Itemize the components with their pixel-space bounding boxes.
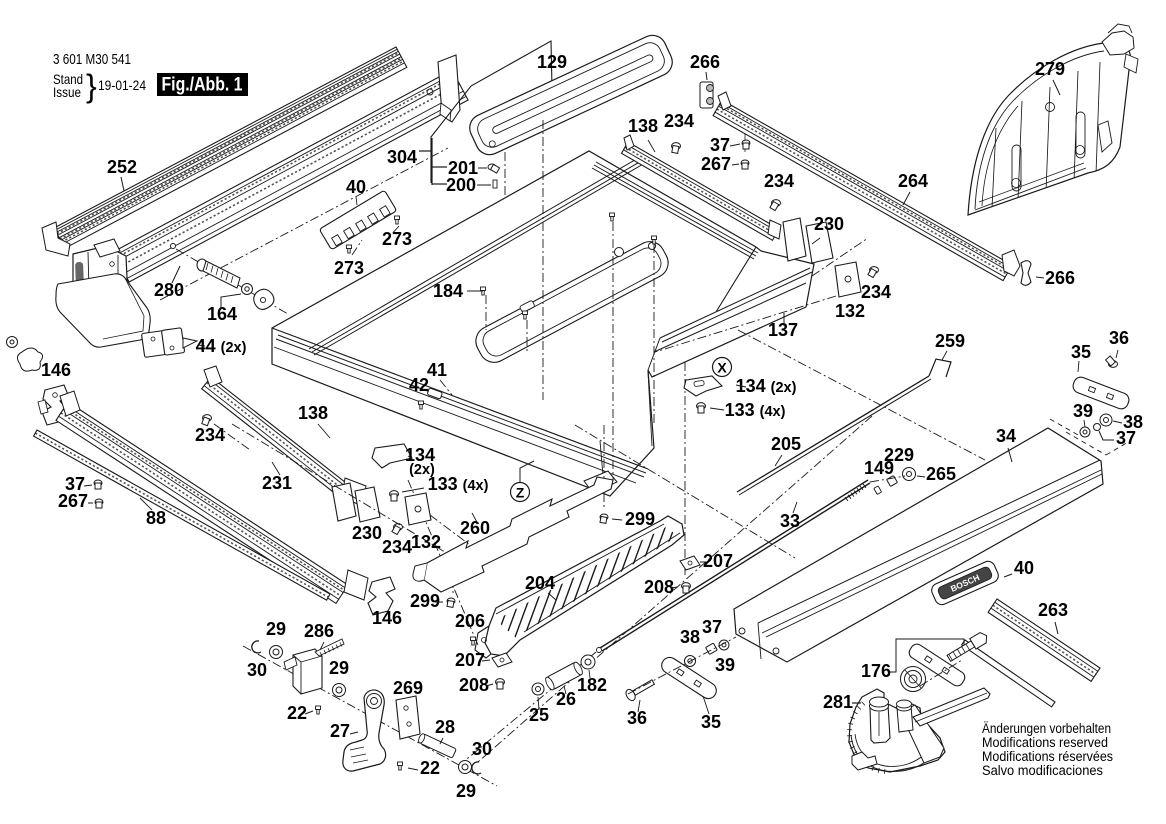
svg-text:286: 286: [304, 621, 334, 641]
svg-text:184: 184: [433, 281, 463, 301]
svg-text:132: 132: [411, 532, 441, 552]
svg-text:}: }: [86, 68, 97, 104]
svg-text:40: 40: [1014, 558, 1034, 578]
svg-text:299: 299: [410, 591, 440, 611]
svg-text:267: 267: [58, 491, 88, 511]
svg-text:28: 28: [435, 717, 455, 737]
svg-text:265: 265: [926, 464, 956, 484]
svg-text:132: 132: [835, 301, 865, 321]
svg-text:Modifications réservées: Modifications réservées: [982, 749, 1113, 764]
svg-text:273: 273: [334, 258, 364, 278]
svg-text:37: 37: [1116, 428, 1136, 448]
svg-text:234: 234: [195, 425, 225, 445]
svg-text:29: 29: [266, 619, 286, 639]
svg-text:40: 40: [346, 177, 366, 197]
svg-text:88: 88: [146, 508, 166, 528]
svg-text:29: 29: [456, 781, 476, 801]
svg-text:234: 234: [764, 171, 794, 191]
svg-text:22: 22: [287, 703, 307, 723]
svg-text:26: 26: [556, 689, 576, 709]
svg-text:234: 234: [382, 537, 412, 557]
svg-text:266: 266: [690, 52, 720, 72]
svg-text:260: 260: [460, 518, 490, 538]
svg-text:138: 138: [298, 403, 328, 423]
svg-text:39: 39: [715, 655, 735, 675]
svg-text:42: 42: [409, 375, 429, 395]
svg-text:38: 38: [680, 627, 700, 647]
svg-text:137: 137: [768, 320, 798, 340]
svg-text:X: X: [717, 360, 727, 376]
svg-text:259: 259: [935, 331, 965, 351]
svg-text:252: 252: [107, 157, 137, 177]
svg-text:164: 164: [207, 304, 237, 324]
svg-text:30: 30: [472, 739, 492, 759]
svg-text:27: 27: [330, 721, 350, 741]
svg-text:30: 30: [247, 660, 267, 680]
svg-text:231: 231: [262, 473, 292, 493]
svg-text:35: 35: [1071, 342, 1091, 362]
svg-text:234: 234: [861, 282, 891, 302]
svg-text:204: 204: [525, 573, 555, 593]
svg-text:22: 22: [420, 758, 440, 778]
svg-text:182: 182: [577, 675, 607, 695]
svg-text:33: 33: [780, 511, 800, 531]
svg-text:273: 273: [382, 229, 412, 249]
svg-text:208: 208: [644, 577, 674, 597]
svg-text:Änderungen vorbehalten: Änderungen vorbehalten: [982, 721, 1111, 736]
svg-text:35: 35: [701, 712, 721, 732]
svg-text:3 601 M30 541: 3 601 M30 541: [53, 52, 131, 68]
svg-text:205: 205: [771, 434, 801, 454]
svg-text:34: 34: [996, 426, 1016, 446]
svg-text:230: 230: [352, 523, 382, 543]
svg-text:266: 266: [1045, 268, 1075, 288]
svg-text:Z: Z: [516, 485, 525, 501]
svg-text:19-01-24: 19-01-24: [98, 77, 146, 93]
svg-text:176: 176: [861, 661, 891, 681]
svg-text:263: 263: [1038, 600, 1068, 620]
svg-text:207: 207: [455, 650, 485, 670]
svg-text:304: 304: [387, 147, 417, 167]
svg-text:208: 208: [459, 675, 489, 695]
svg-text:279: 279: [1035, 59, 1065, 79]
svg-text:230: 230: [814, 214, 844, 234]
svg-text:Modifications reserved: Modifications reserved: [982, 735, 1108, 750]
svg-text:206: 206: [455, 611, 485, 631]
svg-text:41: 41: [427, 360, 447, 380]
svg-text:39: 39: [1073, 401, 1093, 421]
svg-text:36: 36: [627, 708, 647, 728]
svg-text:200: 200: [446, 175, 476, 195]
svg-text:149: 149: [864, 458, 894, 478]
svg-text:138: 138: [628, 116, 658, 136]
svg-text:234: 234: [664, 111, 694, 131]
svg-text:264: 264: [898, 171, 928, 191]
svg-text:267: 267: [701, 154, 731, 174]
svg-text:37: 37: [710, 135, 730, 155]
svg-text:Salvo modificaciones: Salvo modificaciones: [982, 763, 1103, 778]
svg-text:269: 269: [393, 678, 423, 698]
svg-text:37: 37: [702, 617, 722, 637]
svg-text:29: 29: [329, 658, 349, 678]
svg-text:146: 146: [41, 360, 71, 380]
svg-text:Issue: Issue: [53, 84, 81, 100]
svg-text:281: 281: [823, 692, 853, 712]
svg-text:146: 146: [372, 608, 402, 628]
svg-text:36: 36: [1109, 328, 1129, 348]
svg-text:129: 129: [537, 52, 567, 72]
svg-text:Fig./Abb. 1: Fig./Abb. 1: [162, 75, 243, 96]
